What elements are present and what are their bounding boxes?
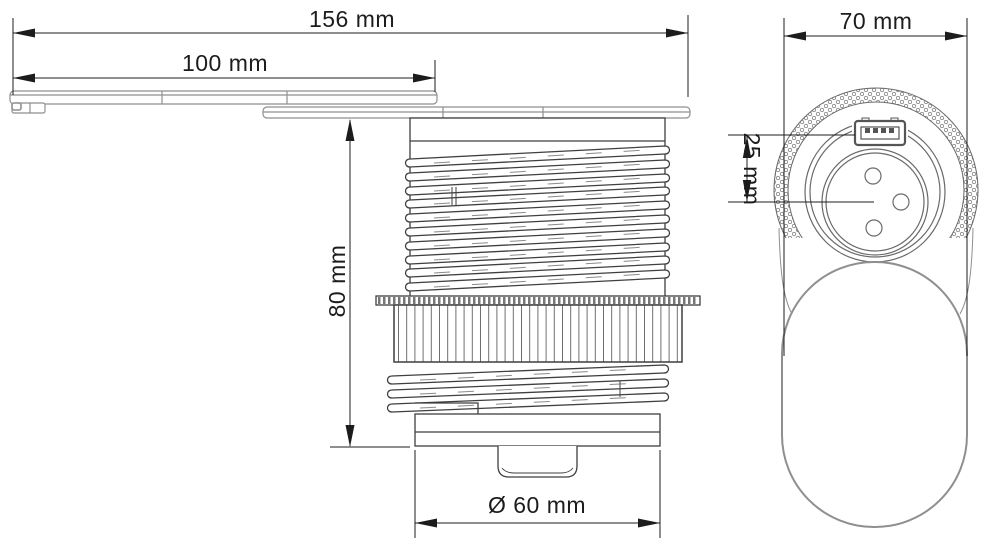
arrowhead-left xyxy=(13,74,35,83)
cover-plate-top-view xyxy=(782,262,967,527)
arrowhead-right xyxy=(638,519,660,528)
arrowhead-right xyxy=(413,74,435,83)
arrowhead-left xyxy=(13,29,35,38)
socket-pin-hole-right xyxy=(893,194,909,210)
socket-pin-hole-bottom xyxy=(866,220,882,236)
top-view xyxy=(774,88,978,527)
dim-label-overall-length: 156 mm xyxy=(309,6,395,32)
drawing-svg: 156 mm 100 mm 80 mm Ø 60 mm 70 mm 25 mm xyxy=(0,0,1000,545)
arrowhead-left xyxy=(784,32,806,41)
dim-label-body-diameter: Ø 60 mm xyxy=(488,492,586,518)
locking-nut xyxy=(376,296,700,362)
technical-drawing-canvas: 156 mm 100 mm 80 mm Ø 60 mm 70 mm 25 mm xyxy=(0,0,1000,545)
side-view xyxy=(10,91,700,477)
base-body xyxy=(415,414,660,446)
arrowhead-right xyxy=(945,32,967,41)
nut-knurling xyxy=(394,305,682,362)
arrowhead-down xyxy=(346,425,355,447)
arrowhead-left xyxy=(415,519,437,528)
flange-side-profile xyxy=(263,107,690,118)
dim-label-lid-length: 100 mm xyxy=(182,50,268,76)
arrowhead-up xyxy=(346,119,355,141)
threaded-body xyxy=(406,118,670,298)
arrowhead-right xyxy=(666,29,688,38)
usb-port xyxy=(852,118,908,147)
dim-label-overall-width: 70 mm xyxy=(840,8,913,34)
lid-plate xyxy=(10,91,437,104)
base-section xyxy=(415,403,660,477)
dim-label-body-height: 80 mm xyxy=(324,245,350,318)
lower-threads xyxy=(388,365,669,412)
ring-neck-left xyxy=(779,228,792,314)
lid-latch-hook xyxy=(12,103,21,110)
socket-pin-hole-top xyxy=(865,168,881,184)
dim-label-usb-offset: 25 mm xyxy=(739,133,765,206)
